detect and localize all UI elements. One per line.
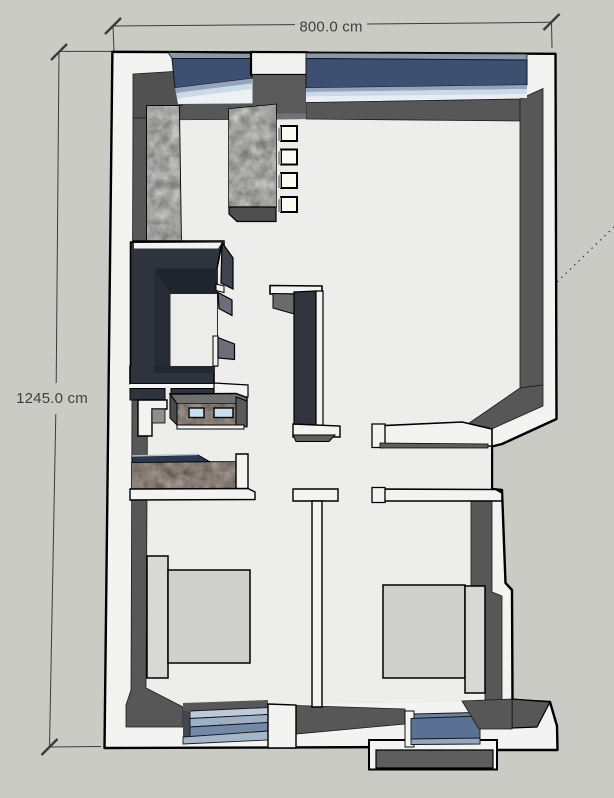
svg-text:800.0 cm: 800.0 cm <box>299 19 362 36</box>
svg-text:1245.0 cm: 1245.0 cm <box>16 390 88 407</box>
